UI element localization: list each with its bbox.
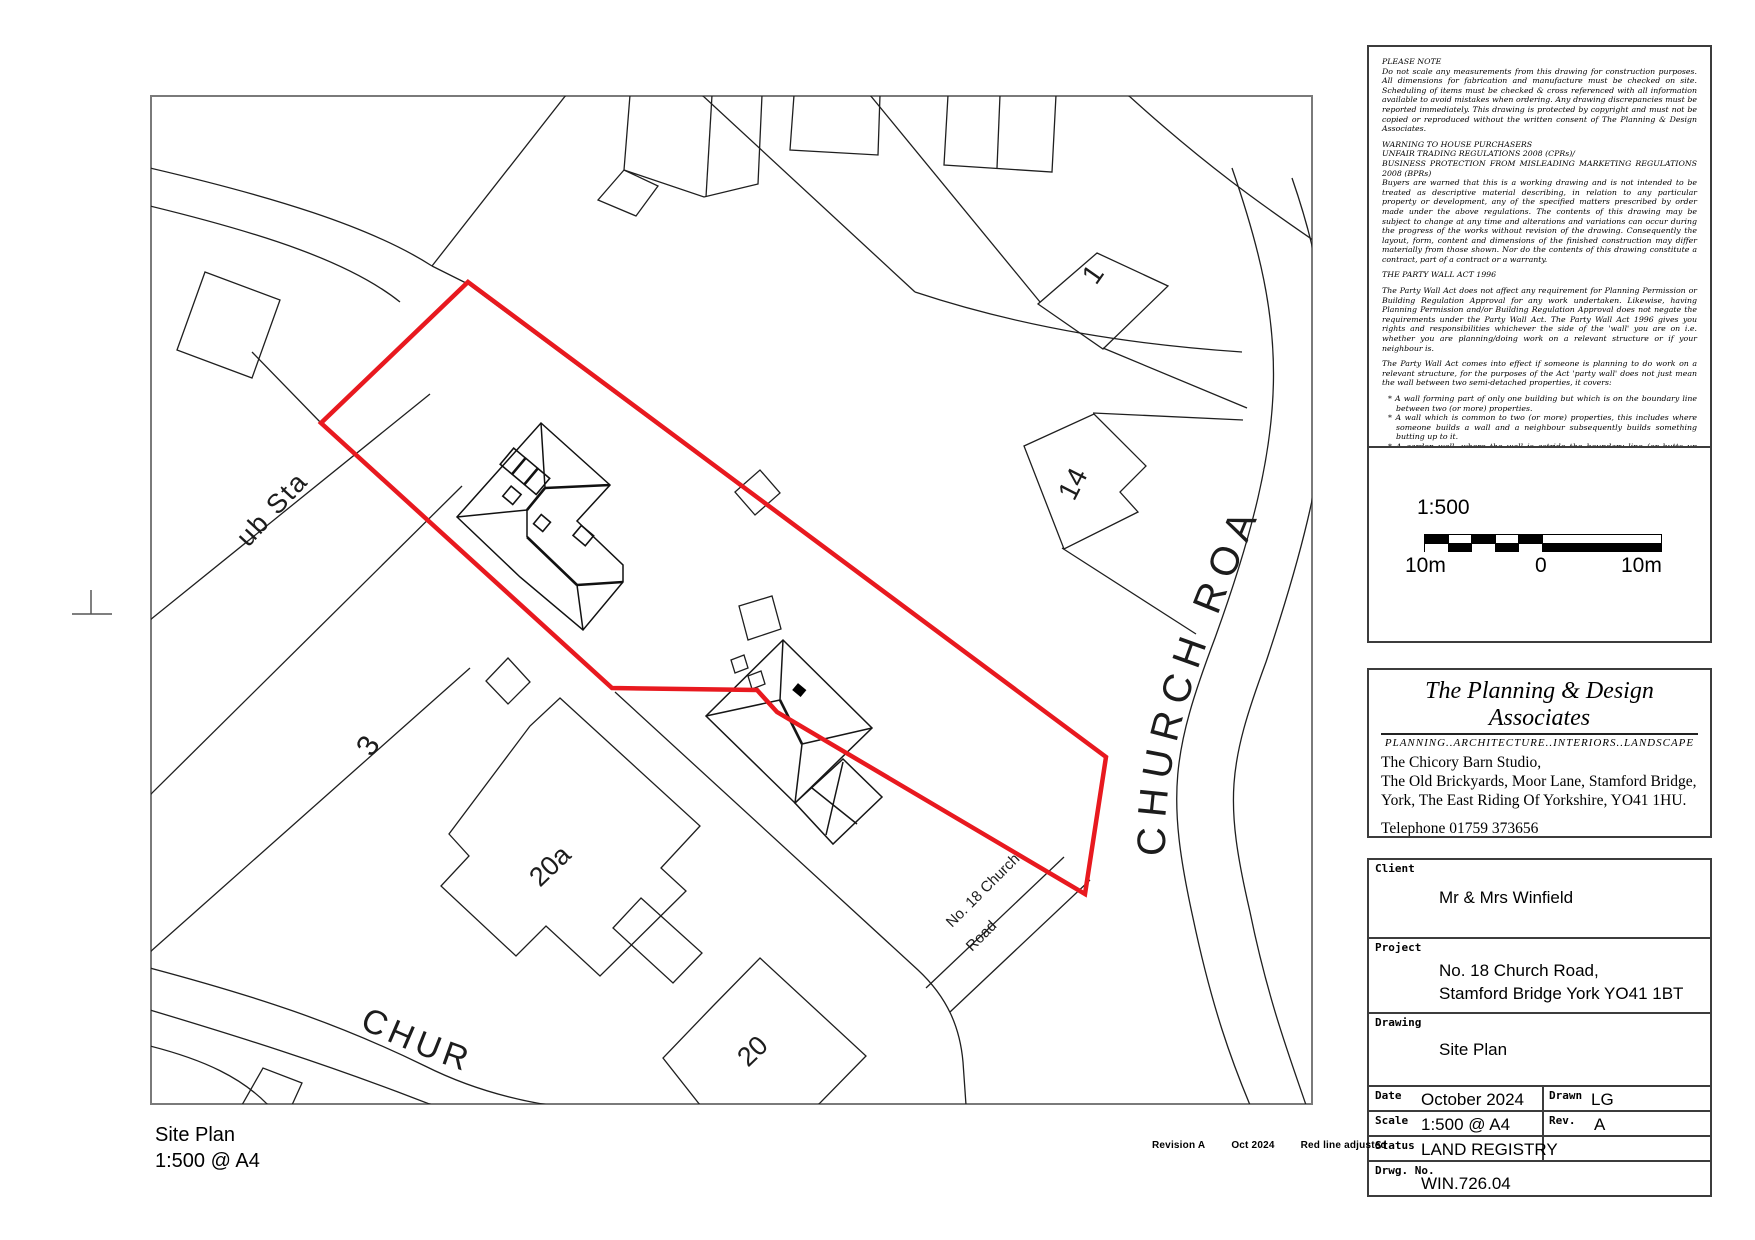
company-tagline: PLANNING..ARCHITECTURE..INTERIORS..LANDS… bbox=[1381, 735, 1698, 753]
scale-value: 1:500 @ A4 bbox=[1421, 1115, 1510, 1135]
client-label: Client bbox=[1375, 862, 1415, 875]
sheet-title-line1: Site Plan bbox=[155, 1122, 260, 1148]
notes-heading-party-wall: THE PARTY WALL ACT 1996 bbox=[1382, 270, 1697, 280]
house-20 bbox=[663, 958, 866, 1105]
notes-heading-please-note: PLEASE NOTE bbox=[1382, 57, 1697, 67]
scale-label: Scale bbox=[1375, 1114, 1408, 1127]
title-row-scale: Scale 1:500 @ A4 Rev. A bbox=[1369, 1110, 1710, 1135]
rev-label: Rev. bbox=[1549, 1114, 1576, 1127]
label-plot-3: 3 bbox=[350, 730, 387, 762]
title-block: Client Mr & Mrs Winfield Project No. 18 … bbox=[1367, 858, 1712, 1197]
scale-label-right: 10m bbox=[1621, 554, 1662, 578]
revision-date: Oct 2024 bbox=[1231, 1140, 1274, 1151]
notes-heading-warning: WARNING TO HOUSE PURCHASERS bbox=[1382, 140, 1697, 150]
main-house bbox=[457, 423, 623, 630]
top-building-1 bbox=[624, 95, 762, 197]
plan-border bbox=[151, 96, 1312, 1104]
status-value: LAND REGISTRY bbox=[1421, 1140, 1558, 1160]
red-line-boundary bbox=[321, 282, 1106, 894]
label-plot-20: 20 bbox=[731, 1030, 773, 1072]
notes-paragraph: The Party Wall Act does not affect any r… bbox=[1382, 286, 1697, 353]
top-building-2 bbox=[790, 95, 880, 155]
label-plot-14: 14 bbox=[1052, 463, 1094, 505]
project-label: Project bbox=[1375, 941, 1421, 954]
sheet-title: Site Plan 1:500 @ A4 bbox=[155, 1122, 260, 1174]
company-address-1: The Chicory Barn Studio, bbox=[1381, 753, 1698, 772]
revision-id: Revision A bbox=[1152, 1140, 1205, 1151]
notes-panel: PLEASE NOTE Do not scale any measurement… bbox=[1367, 45, 1712, 448]
notes-heading-regs1: UNFAIR TRADING REGULATIONS 2008 (CPRs)/ bbox=[1382, 149, 1697, 159]
shed bbox=[486, 658, 530, 704]
client-value: Mr & Mrs Winfield bbox=[1439, 888, 1573, 908]
house-1 bbox=[1038, 253, 1168, 349]
scale-label-zero: 0 bbox=[1535, 554, 1547, 578]
drwg-no-value: WIN.726.04 bbox=[1421, 1174, 1511, 1194]
title-row-client: Client Mr & Mrs Winfield bbox=[1369, 860, 1710, 937]
sheet-title-line2: 1:500 @ A4 bbox=[155, 1148, 260, 1174]
fold-mark bbox=[72, 590, 112, 614]
drawing-value: Site Plan bbox=[1439, 1040, 1507, 1060]
scale-ratio: 1:500 bbox=[1417, 496, 1470, 520]
revision-note: Revision AOct 2024Red line adjusted bbox=[1152, 1140, 1413, 1151]
garage-row bbox=[613, 898, 702, 983]
label-plot-1: 1 bbox=[1076, 259, 1110, 290]
notes-paragraph: Do not scale any measurements from this … bbox=[1382, 67, 1697, 134]
revision-text: Red line adjusted bbox=[1301, 1140, 1387, 1151]
scale-bar bbox=[1424, 534, 1662, 552]
notes-paragraph: Buyers are warned that this is a working… bbox=[1382, 178, 1697, 264]
drawing-sheet: { "plan": { "boundary_color": "#e8191f",… bbox=[0, 0, 1755, 1240]
company-address-2: The Old Brickyards, Moor Lane, Stamford … bbox=[1381, 772, 1698, 791]
map-linework bbox=[150, 95, 1327, 1105]
company-address-3: York, The East Riding Of Yorkshire, YO41… bbox=[1381, 791, 1698, 810]
company-phone: Telephone 01759 373656 bbox=[1381, 819, 1698, 838]
rev-value: A bbox=[1594, 1115, 1605, 1135]
label-subject-line1: No. 18 Church bbox=[943, 850, 1023, 930]
company-name: The Planning & Design Associates bbox=[1381, 678, 1698, 735]
project-value-2: Stamford Bridge York YO41 1BT bbox=[1439, 984, 1683, 1004]
scale-panel: 1:500 10m 0 10m bbox=[1367, 446, 1712, 643]
title-row-date: Date October 2024 Drawn LG bbox=[1369, 1085, 1710, 1110]
date-label: Date bbox=[1375, 1089, 1402, 1102]
label-bottom-road: CHUR bbox=[355, 1000, 478, 1080]
notes-paragraph: The Party Wall Act comes into effect if … bbox=[1382, 359, 1697, 388]
drawing-label: Drawing bbox=[1375, 1016, 1421, 1029]
house-20a bbox=[441, 698, 700, 976]
title-row-status: Status LAND REGISTRY bbox=[1369, 1135, 1710, 1160]
title-row-drwg-no: Drwg. No. WIN.726.04 bbox=[1369, 1160, 1710, 1195]
notes-bullet: * A wall which is common to two (or more… bbox=[1382, 413, 1697, 442]
date-value: October 2024 bbox=[1421, 1090, 1524, 1110]
drawn-value: LG bbox=[1591, 1090, 1614, 1110]
map-labels: ub Sta 3 20a 20 1 14 No. 18 Church Road … bbox=[230, 259, 1268, 1080]
label-substation: ub Sta bbox=[230, 466, 313, 552]
notes-heading-regs2: BUSINESS PROTECTION FROM MISLEADING MARK… bbox=[1382, 159, 1697, 178]
scale-label-left: 10m bbox=[1405, 554, 1446, 578]
company-panel: The Planning & Design Associates PLANNIN… bbox=[1367, 668, 1712, 838]
notes-bullet: * A wall forming part of only one buildi… bbox=[1382, 394, 1697, 413]
title-row-drawing: Drawing Site Plan bbox=[1369, 1012, 1710, 1085]
project-value-1: No. 18 Church Road, bbox=[1439, 961, 1599, 981]
label-church-road: CHURCH ROA bbox=[1130, 497, 1269, 856]
label-plot-20a: 20a bbox=[523, 839, 577, 893]
title-row-project: Project No. 18 Church Road, Stamford Bri… bbox=[1369, 937, 1710, 1012]
house-no18 bbox=[706, 640, 882, 844]
substation-building bbox=[177, 272, 280, 378]
outbuilding bbox=[739, 596, 781, 640]
drawn-label: Drawn bbox=[1549, 1089, 1582, 1102]
